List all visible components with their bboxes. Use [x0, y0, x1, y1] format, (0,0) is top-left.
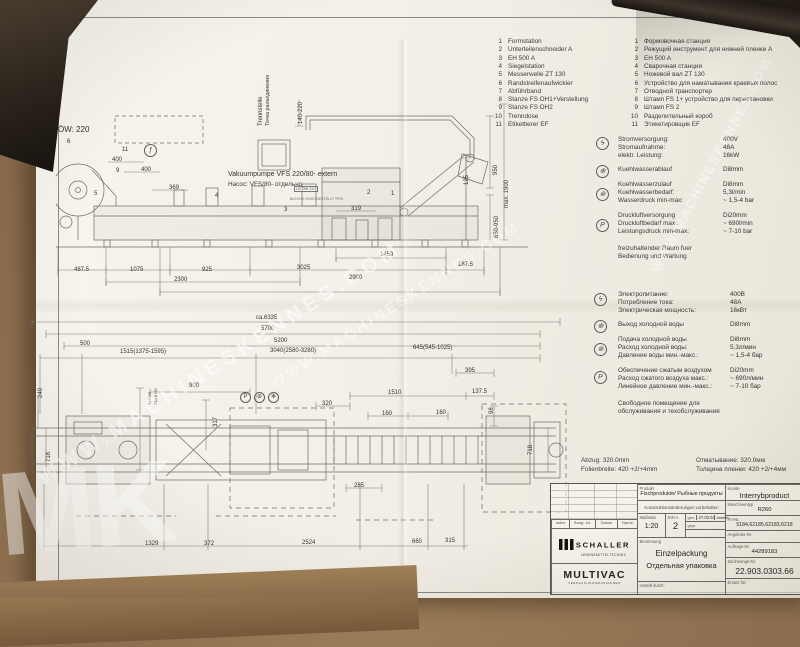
dim-label: 645(545-1025)	[413, 345, 452, 351]
dim-label: 5200	[274, 338, 287, 344]
dim-label: 240	[38, 388, 44, 398]
din-value: 2	[666, 521, 685, 532]
din-cell: DIN A 2	[665, 513, 685, 537]
item-number: 1	[391, 191, 394, 197]
erstellt-label: erstellt durch:	[640, 583, 665, 588]
produkt-label: Produkt	[640, 486, 654, 491]
free-space-note-de: Bedienung und Wartung	[618, 253, 687, 260]
spec-value: 400В	[730, 291, 745, 298]
rev-header-datum: Datum	[595, 519, 617, 528]
legend-num: 9	[624, 104, 638, 111]
electric-icon: ϟ	[596, 137, 609, 150]
din-label: DIN A	[668, 515, 679, 520]
side-view-drawing	[56, 100, 536, 305]
dim-label: 317	[213, 417, 219, 427]
dim-label: 372	[204, 541, 214, 547]
dim-label: 718.6 HS	[153, 388, 158, 405]
legend-de: Unterteilenschneider A	[508, 46, 572, 53]
gez-row: gez. 27.03.03 Immler	[685, 513, 725, 521]
zeichnung-value: 22.903.0303.66	[726, 566, 800, 576]
legend-num: 4	[488, 63, 502, 70]
legend-num: 8	[488, 96, 502, 103]
dim-label: 950	[493, 165, 499, 175]
legend-de: Trenndose	[508, 113, 538, 120]
dim-label: 718	[528, 445, 534, 455]
drawing-sheet: ÖW: 220 6 11 ƒ 400 9 400 369 5 4 2 1 319…	[36, 0, 800, 598]
dim-label: 2900	[349, 275, 362, 281]
benennung-label: Benennung	[640, 539, 661, 544]
dim-label: 1459	[380, 252, 393, 258]
spec-value: 400V	[723, 136, 738, 143]
dim-label: 400	[112, 157, 122, 163]
spec-label: Расход холодной воды:	[618, 344, 688, 351]
spec-value: Di20mm	[723, 212, 747, 219]
water-icon: ⊛	[254, 392, 265, 403]
legend-de: Randstreifenaufwickler	[508, 80, 573, 87]
multivac-wordmark: MULTIVAC	[552, 569, 637, 581]
paper-fold	[36, 298, 800, 314]
spec-label: Druckluftbedarf max :	[618, 220, 679, 227]
spec-label: Kuehlwasserbedarf:	[618, 189, 674, 196]
dim-label: 319	[351, 206, 361, 212]
legend-num: 10	[488, 113, 502, 120]
benennung-de: Einzelpackung	[638, 549, 725, 558]
spec-value: ~ 1,5-4 бар	[730, 352, 762, 359]
dim-label: 140-220	[298, 102, 304, 124]
dim-label: 137.5	[472, 389, 487, 395]
film-width-de: Folienbreite: 420 +2/+4mm	[581, 466, 657, 473]
dim-label: 160	[436, 410, 446, 416]
spec-label: Выход холодной воды	[618, 321, 684, 328]
maschinentyp-label: Maschinentyp	[728, 502, 754, 507]
spec-label: Обеспечение сжатым воздухом	[618, 367, 712, 374]
legend-num: 1	[488, 38, 502, 45]
legend-num: 7	[488, 88, 502, 95]
multivac-logo: MULTIVAC VERPACKUNGSMASCHINEN	[552, 563, 637, 585]
spec-value: ~ 7-10 бар	[730, 383, 761, 390]
auftrag-label: Auftrags-Nr.	[728, 544, 750, 549]
kunde-value: Interrybproduct	[726, 491, 800, 500]
spec-value: 5,3л/мин	[730, 344, 756, 351]
dim-label: 160	[382, 411, 392, 417]
dim-label: 3025	[297, 265, 310, 271]
spec-label: Leistungsdruck min-max:	[618, 228, 689, 235]
dim-label: 1515(1375-1595)	[120, 349, 166, 355]
dim-label: 315	[445, 538, 455, 544]
po-cell: Po-Nr. 5184,62185,62183,6218	[725, 515, 800, 530]
dim-label: 1329	[145, 541, 158, 547]
item-number: 3	[284, 207, 287, 213]
spec-label: Druckluftversorgung	[618, 212, 675, 219]
item-number: 9	[116, 168, 119, 174]
legend-num: 5	[488, 71, 502, 78]
dim-label: 98	[489, 407, 495, 414]
rev-header-index: Index	[551, 519, 569, 528]
legend-num: 11	[488, 121, 502, 128]
spec-value: Di8mm	[723, 166, 743, 173]
schaller-logo: SCHALLER LEBENSMITTELTECHNIK	[552, 536, 637, 557]
spec-value: ~ 690l/min	[723, 220, 753, 227]
water-inlet-icon: ⊛	[596, 188, 609, 201]
legend-ru: Разделительный короб	[644, 113, 713, 120]
opening-width-label: ÖW: 220	[58, 125, 89, 134]
item-number: 4	[215, 193, 218, 199]
legend-num: 9	[488, 104, 502, 111]
item-number: 5	[94, 191, 97, 197]
aenderung-note: Konstruktionsänderungen vorbehalten	[638, 505, 725, 510]
gez-label: gez.	[688, 515, 696, 520]
logo-cell: SCHALLER LEBENSMITTELTECHNIK MULTIVAC VE…	[551, 528, 637, 594]
gez-date: 27.03.03	[696, 515, 715, 520]
spec-label: Подача холодной воды	[618, 336, 687, 343]
legend-ru: Штамп FS 2	[644, 104, 679, 111]
legend-de: Etikettierer EF	[508, 121, 549, 128]
free-space-note-de: freizuhaltender Raum fuer	[618, 245, 692, 252]
spec-value: 16kW	[723, 152, 739, 159]
film-advance-de: Abzug: 320.0mm	[581, 457, 629, 464]
spec-label: Давление воды мин.-макс.:	[618, 352, 699, 359]
fan-icon: ✻	[268, 392, 279, 403]
spec-label: Wasserdruck min-max:	[618, 197, 683, 204]
zeichnung-label: Zeichnungs-Nr.	[728, 559, 756, 564]
schaller-subtitle: LEBENSMITTELTECHNIK	[570, 553, 637, 557]
auftrag-value: 44289183	[726, 549, 800, 555]
dim-label: 487.5	[74, 267, 89, 273]
function-icon: ƒ	[144, 144, 157, 157]
spec-value: 5,3l/min	[723, 189, 745, 196]
water-outlet-icon: ⊕	[596, 165, 609, 178]
legend-num: 11	[624, 121, 638, 128]
spec-label: Электропитание:	[618, 291, 668, 298]
dim-label: 5700	[261, 326, 274, 332]
rev-header-name: Name	[617, 519, 637, 528]
dim-label: max. 1900	[504, 180, 510, 208]
item-number: 6	[67, 139, 70, 145]
dim-label: 500	[80, 341, 90, 347]
dim-label: 925	[202, 267, 212, 273]
dim-label: 320	[322, 401, 332, 407]
note-box: LB ÖW 220	[294, 186, 318, 192]
legend-de: Stanze FS OH1+Verstellung	[508, 96, 588, 103]
spec-value: Di20mm	[730, 367, 754, 374]
free-space-note-ru: обслуживания и техобслуживания	[618, 408, 720, 415]
spec-value: Di8mm	[723, 181, 743, 188]
kunde-cell: Kunde Interrybproduct	[725, 484, 800, 500]
spec-value: ~ 7-10 bar	[723, 228, 752, 235]
spec-value: Di8mm	[730, 336, 750, 343]
massstab-cell: Maßstab 1:20	[637, 513, 665, 537]
legend-de: EH 500 A	[508, 55, 535, 62]
benennung-ru: Отдельная упаковка	[638, 561, 725, 570]
benennung-cell: Benennung Einzelpackung Отдельная упаков…	[637, 537, 725, 581]
legend-de: Formstation	[508, 38, 542, 45]
film-width-ru: Толщина пленки: 420 +2/+4мм	[696, 466, 786, 473]
photo-scene: ÖW: 220 6 11 ƒ 400 9 400 369 5 4 2 1 319…	[0, 0, 800, 598]
legend-ru: Этикетировщик EF	[644, 121, 700, 128]
dim-label: 395	[465, 368, 475, 374]
rev-header-aendnr: Ändg.-Nr.	[569, 519, 595, 528]
maschinentyp-cell: Maschinentyp R260	[725, 500, 800, 515]
dim-label: 715 HS	[147, 392, 152, 405]
empty-row	[685, 529, 725, 537]
po-label: Po-Nr.	[728, 517, 740, 522]
pressure-icon: P	[594, 371, 607, 384]
ersatz-cell: Ersatz für:	[725, 578, 800, 594]
dim-label: 285	[354, 483, 364, 489]
item-number: 11	[122, 147, 128, 153]
free-space-note-ru: Свободное помещение для	[618, 400, 700, 407]
note-small: BLECHE HOCHGESTELLT TPIS	[290, 197, 343, 201]
dim-label: 718	[46, 452, 52, 462]
schaller-wordmark: SCHALLER	[576, 540, 630, 549]
spec-value: Di8mm	[730, 321, 750, 328]
spec-label: Stromversorgung:	[618, 136, 669, 143]
spec-value: 48A	[723, 144, 734, 151]
legend-num: 6	[488, 80, 502, 87]
revision-grid	[551, 484, 637, 519]
produkt-cell: Produkt Fischprodukte/ Рыбные продукты	[637, 484, 725, 500]
gepr-label: gepr.	[688, 523, 697, 528]
legend-num: 2	[488, 46, 502, 53]
dim-label: 369	[169, 185, 179, 191]
spec-label: Расход сжатого воздуха макс.:	[618, 375, 708, 382]
schaller-bars-icon	[559, 539, 574, 550]
water-outlet-icon: ⊕	[594, 320, 607, 333]
erstellt-cell: erstellt durch:	[637, 581, 725, 594]
dim-label: 660	[412, 539, 422, 545]
dim-label: 2300	[174, 277, 187, 283]
massstab-label: Maßstab	[640, 515, 656, 520]
zeichnung-cell: Zeichnungs-Nr. 22.903.0303.66	[725, 557, 800, 578]
ersatz-label: Ersatz für:	[728, 580, 747, 585]
angebot-cell: Angebots-Nr.	[725, 530, 800, 542]
gepr-row: gepr.	[685, 521, 725, 529]
spec-label: Kuehlwasserzulauf	[618, 181, 672, 188]
legend-num: 3	[488, 55, 502, 62]
multivac-subtitle: VERPACKUNGSMASCHINEN	[552, 581, 637, 585]
dim-label: 187.5	[458, 262, 473, 268]
spec-label: Stromaufnahme:	[618, 144, 665, 151]
dim-label: 400	[141, 167, 151, 173]
dim-label: 1075	[130, 267, 143, 273]
spec-value: ~ 1,5-4 bar	[723, 197, 754, 204]
item-number: 2	[367, 190, 370, 196]
dim-label: 125	[464, 175, 470, 185]
angebot-label: Angebots-Nr.	[728, 532, 752, 537]
separation-point-ru: Точка разъединения	[265, 75, 271, 126]
dim-label: 900	[189, 383, 199, 389]
auftrag-cell: Auftrags-Nr. 44289183	[725, 542, 800, 557]
legend-de: Stanze FS OH2	[508, 104, 553, 111]
spec-value: ~ 690л/мин	[730, 375, 763, 382]
pump-note-de: Vakuumpumpe VFS 220/80- extern	[228, 171, 337, 178]
dim-label: 2524	[302, 540, 315, 546]
film-advance-ru: Отматывание: 320.0мм	[696, 457, 765, 464]
spec-label: elektr. Leistung:	[618, 152, 663, 159]
pump-note-ru: Насос: VFS/80- отдельно	[228, 181, 302, 188]
title-block: Index Ändg.-Nr. Datum Name SCHALLER LEBE…	[550, 483, 800, 595]
dim-label: ca.6335	[256, 315, 277, 321]
legend-de: Siegelstation	[508, 63, 545, 70]
aenderung-cell: Konstruktionsänderungen vorbehalten	[637, 500, 725, 513]
pressure-icon: P	[596, 219, 609, 232]
dim-label: 3040(2580-3280)	[270, 348, 316, 354]
massstab-value: 1:20	[638, 523, 665, 530]
legend-de: Messerwelle ZT 130	[508, 71, 565, 78]
legend-de: Abführband	[508, 88, 541, 95]
maschinentyp-value: R260	[726, 507, 800, 513]
water-inlet-icon: ⊛	[594, 343, 607, 356]
spec-label: Kuehlwasserablauf	[618, 166, 672, 173]
separation-point-de: Trennstelle	[258, 97, 264, 126]
po-value: 5184,62185,62183,6218	[726, 522, 800, 528]
spec-label: Линейное давление мин.-макс.:	[618, 383, 712, 390]
pressure-icon: P	[240, 392, 251, 403]
dim-label: 850-950	[494, 216, 500, 238]
legend-num: 10	[624, 113, 638, 120]
produkt-value: Fischprodukte/ Рыбные продукты	[638, 491, 725, 497]
